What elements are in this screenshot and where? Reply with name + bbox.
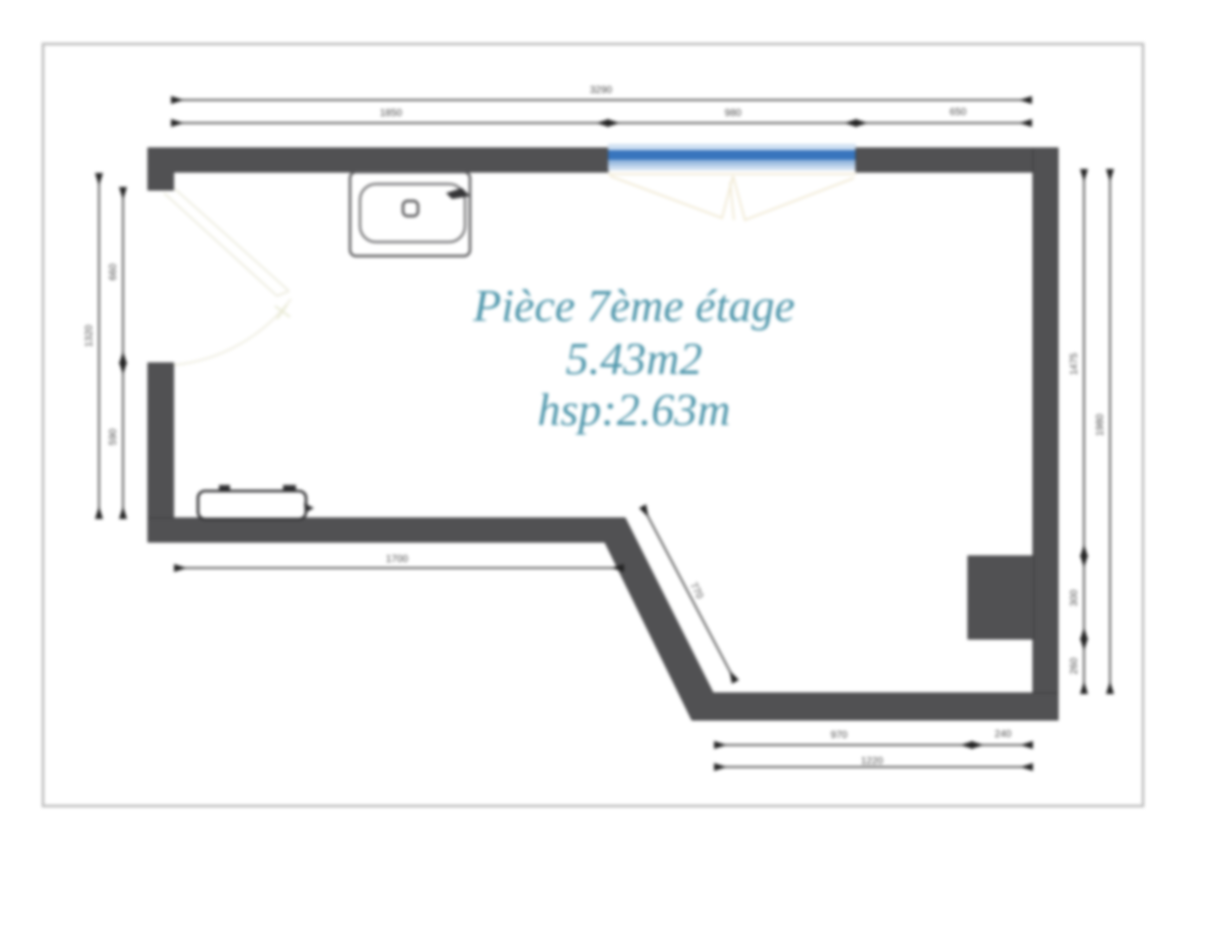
svg-text:3290: 3290: [590, 85, 613, 96]
svg-text:Pièce 7ème étage: Pièce 7ème étage: [472, 280, 795, 331]
svg-text:300: 300: [1069, 589, 1080, 606]
svg-text:240: 240: [995, 729, 1012, 740]
svg-text:1220: 1220: [861, 756, 884, 767]
svg-text:1850: 1850: [380, 108, 403, 119]
svg-text:5.43m2: 5.43m2: [566, 333, 703, 384]
svg-text:650: 650: [950, 107, 967, 118]
svg-text:970: 970: [831, 730, 848, 741]
svg-text:980: 980: [725, 108, 742, 119]
svg-text:1980: 1980: [1095, 413, 1106, 436]
svg-text:590: 590: [108, 428, 119, 445]
svg-text:660: 660: [108, 263, 119, 280]
svg-text:1475: 1475: [1069, 352, 1080, 375]
svg-text:hsp:2.63m: hsp:2.63m: [538, 384, 731, 435]
svg-text:1700: 1700: [386, 554, 409, 565]
svg-text:260: 260: [1069, 657, 1080, 674]
svg-text:1320: 1320: [84, 324, 95, 347]
